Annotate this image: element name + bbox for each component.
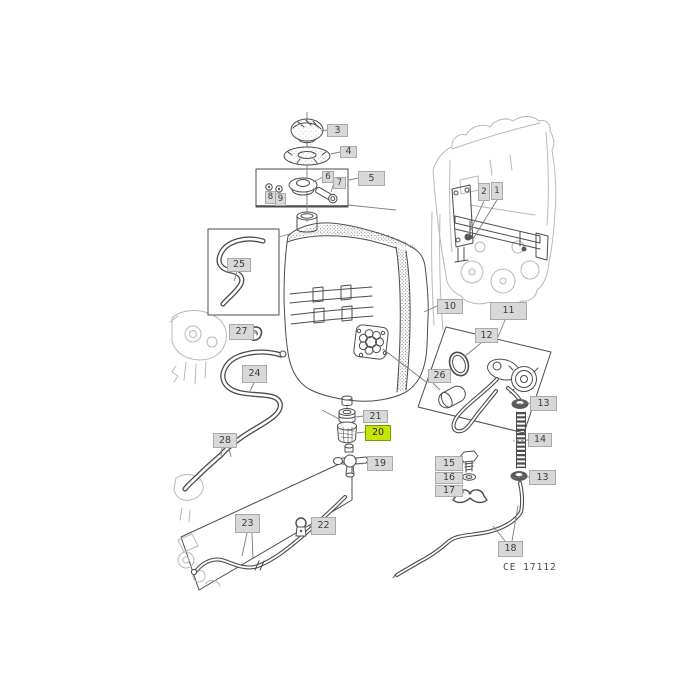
- callout-part-9[interactable]: 9: [275, 193, 286, 206]
- callout-part-4[interactable]: 4: [340, 146, 357, 158]
- callout-part-3[interactable]: 3: [327, 124, 348, 137]
- callout-part-2[interactable]: 2: [478, 183, 490, 201]
- callout-part-14[interactable]: 14: [528, 433, 552, 447]
- part-fuel-tank: [284, 212, 428, 406]
- callout-part-13-lower[interactable]: 13: [529, 470, 556, 485]
- callout-part-20-selected[interactable]: 20: [365, 425, 391, 441]
- part-grommet-13-lower: [511, 471, 528, 481]
- part-neck-grommet: [289, 178, 317, 195]
- callout-part-22[interactable]: 22: [311, 517, 336, 535]
- callout-part-17[interactable]: 17: [435, 485, 463, 497]
- part-washer-16: [463, 474, 476, 480]
- image-code: CE 17112: [503, 562, 557, 573]
- callout-part-12[interactable]: 12: [475, 328, 498, 343]
- diagram-line-art: CE 17112: [0, 0, 700, 700]
- callout-part-15[interactable]: 15: [435, 456, 463, 471]
- callout-part-7[interactable]: 7: [333, 177, 346, 189]
- callout-part-24[interactable]: 24: [242, 365, 267, 383]
- callout-part-5[interactable]: 5: [358, 171, 385, 186]
- callout-part-27[interactable]: 27: [229, 324, 254, 340]
- part-ribbed-tube-14: [517, 412, 526, 468]
- callout-part-19[interactable]: 19: [367, 456, 393, 471]
- faded-parts-upper-left: [170, 311, 226, 384]
- callout-part-28[interactable]: 28: [213, 433, 237, 448]
- part-cap-gasket: [284, 147, 330, 165]
- part-fuel-cap: [291, 119, 323, 143]
- callout-part-26[interactable]: 26: [428, 369, 451, 383]
- callout-part-10[interactable]: 10: [437, 299, 463, 314]
- callout-part-1[interactable]: 1: [491, 182, 503, 200]
- callout-part-23[interactable]: 23: [235, 514, 260, 533]
- part-hose-24: [185, 351, 286, 489]
- part-filter-screen-20: [338, 422, 357, 443]
- callout-part-18[interactable]: 18: [498, 541, 523, 557]
- engine-block-sketch: [432, 117, 556, 331]
- parts-diagram-canvas: CE 17112 3 4 5 6 7 8 9 1 2 10 11 12 26 2…: [0, 0, 700, 700]
- callout-part-25[interactable]: 25: [227, 258, 251, 272]
- callout-part-13-upper[interactable]: 13: [530, 396, 557, 411]
- callout-part-11[interactable]: 11: [490, 302, 527, 320]
- callout-part-21[interactable]: 21: [363, 410, 388, 423]
- part-bushing-21: [339, 409, 355, 424]
- callout-part-16[interactable]: 16: [435, 472, 463, 484]
